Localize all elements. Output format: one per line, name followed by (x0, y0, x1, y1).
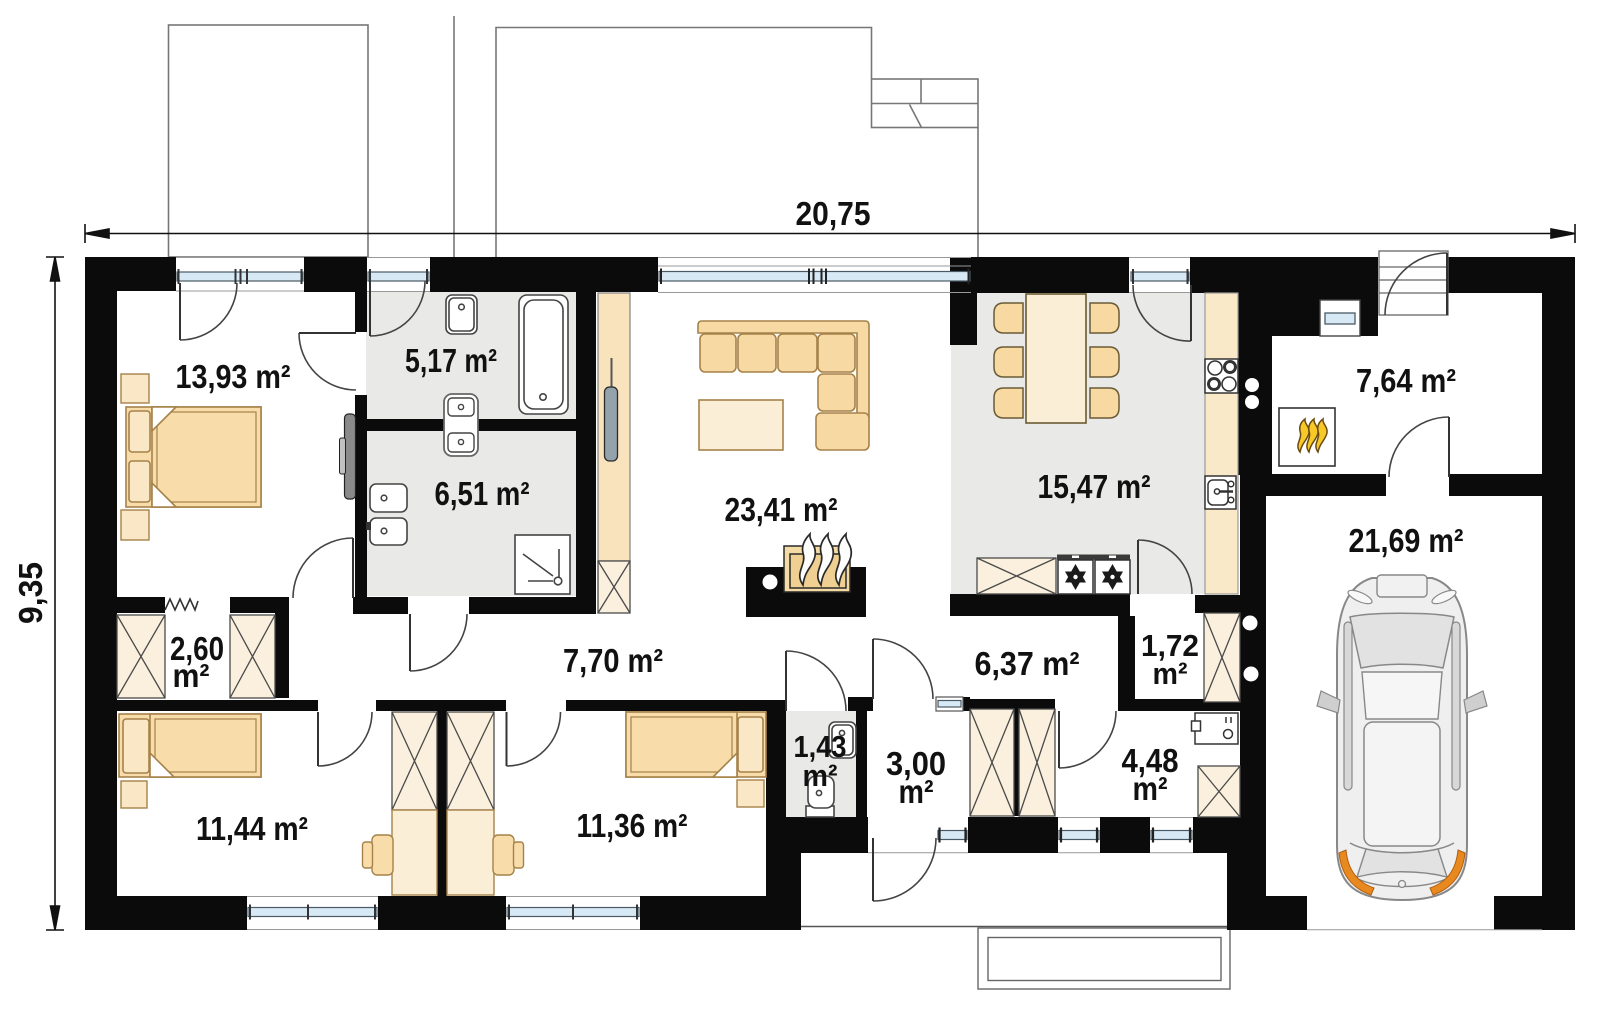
svg-text:23,41 m²: 23,41 m² (725, 491, 838, 528)
svg-text:13,93 m²: 13,93 m² (176, 358, 291, 395)
svg-text:20,75: 20,75 (796, 195, 871, 232)
svg-text:m²: m² (1133, 770, 1168, 807)
svg-text:m²: m² (803, 758, 838, 793)
svg-text:m²: m² (899, 773, 934, 810)
svg-text:7,70 m²: 7,70 m² (563, 642, 663, 679)
svg-text:9,35: 9,35 (12, 562, 49, 624)
svg-text:m²: m² (173, 657, 210, 694)
svg-text:11,44 m²: 11,44 m² (196, 810, 308, 847)
svg-text:11,36 m²: 11,36 m² (577, 807, 688, 844)
svg-text:21,69 m²: 21,69 m² (1349, 522, 1464, 559)
svg-text:6,51 m²: 6,51 m² (435, 475, 530, 512)
svg-text:6,37 m²: 6,37 m² (975, 645, 1080, 682)
svg-text:7,64 m²: 7,64 m² (1356, 362, 1456, 399)
svg-text:m²: m² (1153, 656, 1188, 691)
svg-text:15,47 m²: 15,47 m² (1038, 468, 1151, 505)
svg-text:5,17 m²: 5,17 m² (405, 342, 497, 379)
